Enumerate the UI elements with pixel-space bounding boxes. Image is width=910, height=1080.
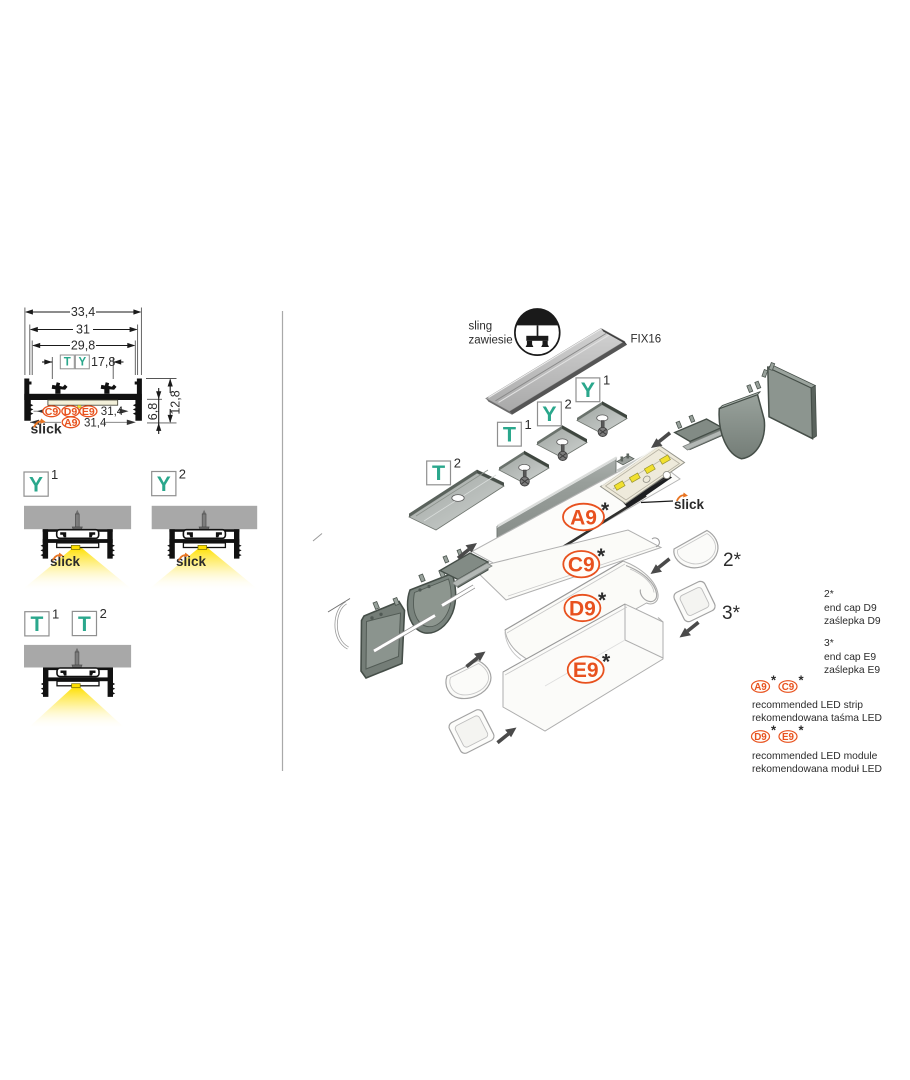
- svg-text:1: 1: [525, 417, 532, 432]
- svg-text:*: *: [601, 499, 610, 522]
- svg-text:Y: Y: [542, 402, 556, 426]
- svg-text:T: T: [78, 613, 91, 636]
- svg-text:2: 2: [100, 606, 107, 621]
- svg-text:C9: C9: [568, 554, 595, 577]
- svg-text:*: *: [598, 589, 607, 612]
- svg-text:3*: 3*: [722, 603, 741, 624]
- svg-text:12,8: 12,8: [169, 390, 183, 414]
- svg-text:FIX16: FIX16: [631, 334, 662, 346]
- svg-text:C9: C9: [45, 406, 59, 418]
- svg-text:6,8: 6,8: [146, 403, 160, 420]
- svg-text:2: 2: [454, 456, 461, 471]
- svg-text:Y: Y: [581, 378, 595, 402]
- svg-text:T: T: [64, 357, 71, 369]
- svg-text:2: 2: [179, 467, 186, 482]
- svg-text:1: 1: [51, 467, 58, 482]
- svg-text:end cap E9: end cap E9: [824, 652, 876, 663]
- svg-text:rekomendowana moduł LED: rekomendowana moduł LED: [752, 764, 882, 775]
- svg-text:17,8: 17,8: [91, 355, 115, 369]
- svg-text:Y: Y: [157, 473, 171, 496]
- svg-text:A9: A9: [570, 507, 597, 530]
- svg-text:zaślepka E9: zaślepka E9: [824, 665, 880, 676]
- svg-text:A9: A9: [754, 682, 767, 693]
- svg-text:A9: A9: [64, 417, 78, 429]
- svg-text:Y: Y: [29, 474, 43, 497]
- svg-text:3*: 3*: [824, 638, 834, 649]
- svg-text:slick: slick: [31, 421, 62, 437]
- svg-text:recommended LED module: recommended LED module: [752, 751, 878, 762]
- svg-text:E9: E9: [782, 732, 795, 743]
- svg-text:29,8: 29,8: [71, 339, 95, 353]
- svg-text:slick: slick: [50, 554, 81, 569]
- svg-text:2: 2: [565, 397, 572, 412]
- svg-text:D9: D9: [569, 598, 596, 621]
- svg-text:zaślepka D9: zaślepka D9: [824, 616, 881, 627]
- svg-text:1: 1: [52, 607, 59, 622]
- svg-text:zawiesie: zawiesie: [469, 335, 513, 347]
- svg-text:2*: 2*: [824, 589, 834, 600]
- svg-text:Y: Y: [78, 357, 86, 369]
- svg-text:T: T: [30, 613, 43, 636]
- svg-text:*: *: [597, 545, 606, 568]
- svg-text:E9: E9: [82, 406, 95, 418]
- svg-text:2*: 2*: [723, 550, 742, 571]
- svg-text:C9: C9: [782, 682, 795, 693]
- svg-text:31: 31: [76, 323, 90, 337]
- svg-text:slick: slick: [176, 554, 207, 569]
- svg-text:T: T: [432, 461, 445, 485]
- svg-text:D9: D9: [754, 732, 767, 743]
- svg-text:E9: E9: [573, 659, 599, 682]
- svg-text:recommended LED strip: recommended LED strip: [752, 700, 863, 711]
- svg-text:1: 1: [603, 373, 610, 388]
- svg-text:T: T: [503, 422, 516, 446]
- svg-text:sling: sling: [469, 321, 493, 333]
- svg-text:end cap D9: end cap D9: [824, 603, 877, 614]
- svg-text:31,4: 31,4: [84, 417, 107, 429]
- svg-text:33,4: 33,4: [71, 305, 95, 319]
- svg-text:*: *: [602, 651, 611, 674]
